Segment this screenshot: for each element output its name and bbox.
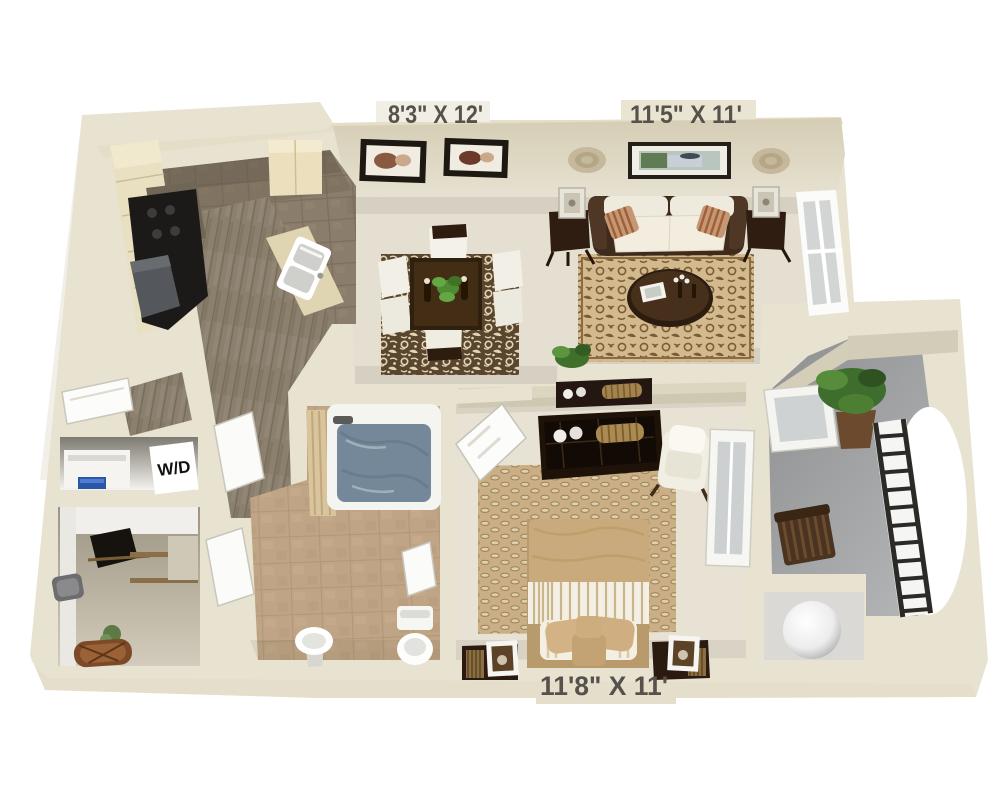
svg-text:11'5" X 11': 11'5" X 11' bbox=[630, 101, 742, 129]
svg-text:W/D: W/D bbox=[157, 457, 192, 480]
svg-text:8'3" X 12': 8'3" X 12' bbox=[388, 101, 483, 129]
svg-text:11'8" X 11': 11'8" X 11' bbox=[540, 671, 668, 701]
